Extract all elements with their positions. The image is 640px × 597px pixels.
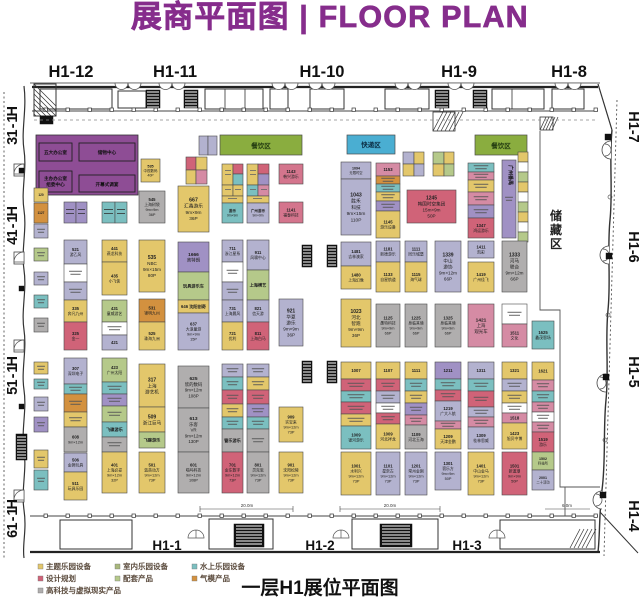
svg-text:1: 1 bbox=[5, 115, 21, 123]
svg-text:73P: 73P bbox=[288, 431, 295, 435]
svg-text:9m×12m: 9m×12m bbox=[68, 440, 83, 444]
svg-text:1001: 1001 bbox=[351, 463, 361, 468]
svg-text:66P: 66P bbox=[510, 276, 518, 281]
svg-text:50P: 50P bbox=[445, 477, 452, 481]
svg-text:20.0m: 20.0m bbox=[241, 503, 254, 508]
svg-text:信天游: 信天游 bbox=[252, 311, 264, 316]
svg-text:中视数码: 中视数码 bbox=[144, 168, 158, 173]
svg-text:玩具游乐车: 玩具游乐车 bbox=[183, 282, 205, 289]
svg-text:联合: 联合 bbox=[510, 263, 520, 270]
svg-text:421: 421 bbox=[111, 340, 119, 345]
svg-text:909: 909 bbox=[288, 414, 296, 419]
svg-text:36P: 36P bbox=[149, 213, 156, 217]
svg-text:沈阳松陵: 沈阳松陵 bbox=[283, 467, 299, 472]
svg-text:711: 711 bbox=[229, 246, 236, 251]
svg-text:愚特科技: 愚特科技 bbox=[380, 320, 396, 325]
svg-text:寰乐方: 寰乐方 bbox=[442, 466, 454, 471]
svg-text:H1-9: H1-9 bbox=[441, 63, 477, 81]
svg-text:锦明九州: 锦明九州 bbox=[144, 310, 160, 315]
svg-text:73P: 73P bbox=[149, 479, 156, 483]
svg-text:1111: 1111 bbox=[412, 368, 421, 373]
svg-text:浙江巨马: 浙江巨马 bbox=[143, 419, 162, 426]
svg-text:华夏: 华夏 bbox=[286, 313, 296, 320]
svg-text:545: 545 bbox=[149, 197, 157, 202]
svg-text:上海: 上海 bbox=[147, 382, 157, 389]
svg-text:9m×12m: 9m×12m bbox=[408, 474, 423, 478]
svg-text:1: 1 bbox=[5, 365, 21, 373]
svg-text:河马: 河马 bbox=[510, 257, 520, 264]
svg-text:藏: 藏 bbox=[550, 222, 562, 237]
svg-text:游乐: 游乐 bbox=[539, 442, 547, 447]
svg-text:9m×12m: 9m×12m bbox=[473, 474, 488, 478]
svg-text:9m×15m: 9m×15m bbox=[347, 211, 366, 217]
svg-text:911: 911 bbox=[255, 250, 262, 255]
svg-text:9m×9m: 9m×9m bbox=[442, 326, 455, 330]
svg-text:海气球: 海气球 bbox=[410, 277, 422, 282]
svg-text:河北玉海: 河北玉海 bbox=[408, 437, 424, 442]
svg-text:鑫茂恩场: 鑫茂恩场 bbox=[535, 335, 551, 340]
svg-text:80P: 80P bbox=[148, 273, 156, 278]
svg-text:73P: 73P bbox=[255, 479, 262, 483]
svg-text:优利: 优利 bbox=[229, 336, 237, 341]
svg-text:1201: 1201 bbox=[411, 463, 421, 468]
svg-text:凯彩: 凯彩 bbox=[477, 249, 485, 254]
svg-text:-: - bbox=[5, 123, 21, 128]
svg-text:实宝来: 实宝来 bbox=[285, 419, 297, 424]
svg-text:餐饮区: 餐饮区 bbox=[490, 141, 511, 150]
svg-text:9m×9m: 9m×9m bbox=[185, 210, 201, 216]
svg-text:上海必妥: 上海必妥 bbox=[107, 467, 123, 472]
svg-text:6.0m: 6.0m bbox=[562, 503, 572, 508]
svg-text:1145: 1145 bbox=[383, 219, 393, 224]
svg-text:40P: 40P bbox=[147, 173, 154, 177]
svg-text:小飞侠: 小飞侠 bbox=[109, 278, 121, 283]
svg-text:435: 435 bbox=[111, 273, 119, 278]
svg-text:646 沈阳创奇: 646 沈阳创奇 bbox=[181, 303, 207, 310]
svg-text:637: 637 bbox=[190, 321, 198, 326]
svg-text:无限时空: 无限时空 bbox=[349, 170, 363, 175]
svg-text:天津金鹏: 天津金鹏 bbox=[440, 439, 456, 444]
svg-text:胜禾: 胜禾 bbox=[351, 198, 361, 205]
svg-text:1043: 1043 bbox=[350, 192, 362, 198]
svg-text:9m×9m: 9m×9m bbox=[283, 326, 299, 331]
svg-text:108P: 108P bbox=[189, 479, 198, 483]
svg-text:50P: 50P bbox=[511, 480, 518, 484]
svg-text:9m×12m: 9m×12m bbox=[505, 270, 523, 275]
svg-text:蓝英动方: 蓝英动方 bbox=[144, 467, 160, 472]
svg-text:吉林澳家: 吉林澳家 bbox=[348, 254, 364, 259]
svg-text:高科技与虚拟现实产品: 高科技与虚拟现实产品 bbox=[46, 585, 121, 595]
svg-text:游协: 游协 bbox=[443, 263, 453, 270]
svg-text:飞碟游乐: 飞碟游乐 bbox=[106, 426, 124, 433]
svg-text:901: 901 bbox=[288, 462, 296, 467]
svg-text:9m×12m: 9m×12m bbox=[186, 473, 201, 477]
svg-text:50P: 50P bbox=[427, 213, 435, 218]
svg-text:73P: 73P bbox=[413, 480, 420, 484]
svg-text:1109: 1109 bbox=[411, 432, 421, 437]
svg-text:福泰科技: 福泰科技 bbox=[283, 212, 299, 217]
svg-text:20.0m: 20.0m bbox=[384, 503, 397, 508]
svg-text:奔凡九州: 奔凡九州 bbox=[68, 311, 84, 316]
svg-text:9m×12m: 9m×12m bbox=[439, 270, 457, 275]
svg-text:汇鑫游乐: 汇鑫游乐 bbox=[184, 203, 203, 210]
svg-text:9m×12m: 9m×12m bbox=[225, 473, 240, 477]
svg-text:1009: 1009 bbox=[383, 431, 393, 436]
svg-text:水利兴: 水利兴 bbox=[350, 468, 362, 473]
svg-text:游乙风: 游乙风 bbox=[70, 252, 82, 257]
svg-text:15P: 15P bbox=[190, 338, 197, 342]
svg-text:9m×9m: 9m×9m bbox=[348, 327, 364, 332]
svg-text:9m×9m: 9m×9m bbox=[442, 472, 455, 476]
svg-text:9m×9m: 9m×9m bbox=[187, 332, 200, 336]
svg-text:童威游艺: 童威游艺 bbox=[107, 311, 123, 316]
svg-text:9m×12m: 9m×12m bbox=[250, 473, 265, 477]
svg-text:-: - bbox=[5, 516, 21, 521]
svg-text:科技所: 科技所 bbox=[538, 460, 549, 465]
svg-text:1325: 1325 bbox=[443, 315, 453, 320]
svg-text:1301: 1301 bbox=[443, 461, 453, 466]
svg-text:1225: 1225 bbox=[411, 315, 421, 320]
svg-text:二十活动: 二十活动 bbox=[536, 479, 550, 484]
svg-text:1115: 1115 bbox=[412, 272, 422, 277]
svg-text:金东数字: 金东数字 bbox=[225, 467, 241, 472]
svg-text:130P: 130P bbox=[188, 439, 198, 444]
svg-text:一层H1展位平面图: 一层H1展位平面图 bbox=[241, 576, 398, 597]
svg-text:9m×9m: 9m×9m bbox=[146, 208, 159, 212]
svg-text:储物中心: 储物中心 bbox=[98, 149, 117, 156]
svg-text:H1-11: H1-11 bbox=[153, 63, 197, 81]
svg-text:H1-12: H1-12 bbox=[49, 63, 94, 81]
svg-text:441: 441 bbox=[111, 246, 119, 251]
svg-text:1: 1 bbox=[5, 508, 21, 516]
svg-text:银河游乐: 银河游乐 bbox=[348, 437, 364, 442]
svg-text:同乐城堡: 同乐城堡 bbox=[408, 251, 424, 256]
svg-text:73P: 73P bbox=[385, 480, 392, 484]
svg-text:801: 801 bbox=[255, 462, 263, 467]
svg-text:335: 335 bbox=[72, 306, 80, 311]
svg-text:431: 431 bbox=[111, 306, 119, 311]
svg-text:423: 423 bbox=[111, 365, 119, 370]
svg-text:广州佳飞: 广州佳飞 bbox=[473, 277, 489, 282]
svg-text:6: 6 bbox=[5, 530, 21, 538]
svg-text:上海模艺: 上海模艺 bbox=[250, 281, 267, 288]
svg-text:1209: 1209 bbox=[443, 434, 453, 439]
svg-text:飞碟游乐: 飞碟游乐 bbox=[144, 436, 162, 443]
svg-text:36P: 36P bbox=[352, 333, 360, 338]
svg-text:上海白马: 上海白马 bbox=[250, 336, 266, 341]
svg-text:游艺机: 游艺机 bbox=[145, 388, 159, 395]
svg-text:1133: 1133 bbox=[383, 272, 393, 277]
svg-text:9m×12m: 9m×12m bbox=[185, 433, 203, 438]
svg-text:608: 608 bbox=[72, 434, 80, 439]
svg-text:广州游乐: 广州游乐 bbox=[251, 208, 266, 213]
svg-text:快递区: 快递区 bbox=[361, 140, 381, 149]
svg-text:1: 1 bbox=[5, 215, 21, 223]
svg-text:9m×12m: 9m×12m bbox=[380, 474, 395, 478]
svg-text:新道潮: 新道潮 bbox=[509, 468, 521, 473]
svg-text:1007: 1007 bbox=[351, 368, 361, 373]
svg-text:H1-5: H1-5 bbox=[625, 356, 640, 387]
svg-text:1153: 1153 bbox=[383, 167, 393, 172]
svg-text:1321: 1321 bbox=[510, 368, 520, 373]
svg-text:广州番禺: 广州番禺 bbox=[507, 165, 514, 185]
svg-text:721: 721 bbox=[229, 331, 237, 336]
svg-text:1411: 1411 bbox=[476, 244, 486, 249]
svg-text:主题乐园设备: 主题乐园设备 bbox=[46, 561, 91, 571]
svg-text:H1-10: H1-10 bbox=[300, 63, 345, 81]
svg-text:73P: 73P bbox=[353, 480, 360, 484]
svg-text:五大办公室: 五大办公室 bbox=[44, 149, 67, 156]
svg-text:韩兴游乐: 韩兴游乐 bbox=[283, 174, 299, 179]
svg-text:1: 1 bbox=[5, 522, 21, 530]
svg-text:701: 701 bbox=[229, 462, 237, 467]
svg-text:风啸中心: 风啸中心 bbox=[250, 255, 266, 260]
svg-text:1211: 1211 bbox=[443, 368, 453, 373]
svg-text:66P: 66P bbox=[444, 276, 452, 281]
svg-text:1: 1 bbox=[5, 129, 21, 137]
svg-text:中山: 中山 bbox=[443, 257, 453, 264]
svg-text:深圳电子: 深圳电子 bbox=[68, 371, 84, 376]
svg-text:9m×12m: 9m×12m bbox=[107, 473, 122, 477]
svg-text:智跑: 智跑 bbox=[351, 320, 361, 327]
svg-text:主办办公室: 主办办公室 bbox=[44, 175, 67, 182]
svg-text:1: 1 bbox=[5, 379, 21, 387]
svg-text:1101: 1101 bbox=[383, 463, 393, 468]
svg-text:9m×12m: 9m×12m bbox=[283, 425, 298, 429]
svg-text:浙江星系: 浙江星系 bbox=[225, 251, 241, 256]
svg-text:1311: 1311 bbox=[476, 368, 486, 373]
svg-text:1518: 1518 bbox=[510, 415, 520, 420]
svg-text:上海幻像: 上海幻像 bbox=[348, 277, 364, 282]
svg-text:上海树袋: 上海树袋 bbox=[144, 202, 160, 207]
svg-text:307: 307 bbox=[72, 366, 80, 371]
svg-text:桂林思威: 桂林思威 bbox=[473, 438, 489, 443]
svg-text:535: 535 bbox=[147, 164, 153, 168]
svg-text:金狮玩具: 金狮玩具 bbox=[68, 462, 84, 467]
svg-text:73P: 73P bbox=[478, 480, 485, 484]
svg-text:H1-2: H1-2 bbox=[305, 538, 334, 553]
svg-text:储: 储 bbox=[550, 208, 562, 223]
svg-text:H1-4: H1-4 bbox=[625, 500, 640, 531]
svg-text:1125: 1125 bbox=[383, 315, 393, 320]
svg-text:601: 601 bbox=[190, 462, 198, 467]
svg-text:VR: VR bbox=[190, 428, 196, 433]
svg-text:1219: 1219 bbox=[443, 406, 453, 411]
svg-text:1511: 1511 bbox=[510, 330, 520, 335]
svg-text:上海晨风: 上海晨风 bbox=[225, 311, 241, 316]
svg-text:燕龙科技: 燕龙科技 bbox=[107, 251, 123, 256]
svg-text:喵吗科技: 喵吗科技 bbox=[186, 467, 202, 472]
svg-text:H1-7: H1-7 bbox=[625, 111, 640, 142]
svg-text:玩具乐园: 玩具乐园 bbox=[68, 486, 84, 491]
svg-text:506: 506 bbox=[72, 457, 80, 462]
svg-text:1: 1 bbox=[5, 229, 21, 237]
svg-text:新德游乐: 新德游乐 bbox=[380, 251, 396, 256]
svg-text:广大人航: 广大人航 bbox=[440, 411, 456, 416]
svg-text:1625: 1625 bbox=[538, 330, 548, 335]
svg-text:1009: 1009 bbox=[351, 432, 361, 437]
svg-text:自星航道: 自星航道 bbox=[380, 277, 396, 282]
svg-text:1621: 1621 bbox=[538, 368, 548, 373]
svg-text:9m×9m: 9m×9m bbox=[382, 326, 395, 330]
svg-text:120: 120 bbox=[38, 193, 44, 197]
svg-text:灵克思: 灵克思 bbox=[252, 467, 264, 472]
svg-text:525: 525 bbox=[149, 331, 157, 336]
svg-text:110P: 110P bbox=[351, 217, 362, 223]
svg-text:-: - bbox=[5, 373, 21, 378]
svg-text:餐饮区: 餐饮区 bbox=[250, 141, 271, 150]
svg-text:常州金刚: 常州金刚 bbox=[408, 468, 424, 473]
svg-text:NBC: NBC bbox=[147, 261, 157, 266]
svg-text:河北祥龙: 河北祥龙 bbox=[380, 436, 396, 441]
svg-text:鸿运游乐: 鸿运游乐 bbox=[473, 228, 489, 233]
svg-text:811: 811 bbox=[255, 331, 262, 336]
svg-text:731: 731 bbox=[229, 306, 237, 311]
svg-text:511: 511 bbox=[72, 481, 79, 486]
svg-text:大浪童游: 大浪童游 bbox=[186, 326, 202, 331]
svg-text:821: 821 bbox=[255, 306, 263, 311]
svg-text:中山金马: 中山金马 bbox=[473, 468, 489, 473]
svg-text:身临其境: 身临其境 bbox=[408, 320, 424, 325]
svg-text:9m×12m: 9m×12m bbox=[283, 473, 298, 477]
svg-text:1480: 1480 bbox=[351, 272, 361, 277]
svg-text:531: 531 bbox=[149, 305, 157, 310]
svg-text:配套产品: 配套产品 bbox=[123, 573, 153, 583]
svg-text:9m×12m: 9m×12m bbox=[144, 473, 159, 477]
svg-text:1107: 1107 bbox=[383, 368, 393, 373]
svg-text:66P: 66P bbox=[385, 332, 392, 336]
svg-text:4: 4 bbox=[5, 237, 21, 245]
svg-text:H1-6: H1-6 bbox=[625, 231, 640, 262]
svg-text:观光车: 观光车 bbox=[474, 328, 488, 335]
svg-text:星奈古: 星奈古 bbox=[382, 468, 394, 473]
svg-text:667: 667 bbox=[189, 197, 198, 203]
svg-text:9m×12m: 9m×12m bbox=[185, 388, 203, 393]
svg-text:水上乐园设备: 水上乐园设备 bbox=[200, 561, 245, 571]
svg-text:1423: 1423 bbox=[510, 431, 520, 436]
svg-text:区: 区 bbox=[550, 237, 562, 251]
svg-text:身临其境: 身临其境 bbox=[440, 320, 456, 325]
svg-text:9m×9m: 9m×9m bbox=[410, 326, 423, 330]
svg-text:开幕式调宴: 开幕式调宴 bbox=[96, 181, 119, 188]
svg-text:9m×15m: 9m×15m bbox=[143, 267, 161, 272]
svg-text:521: 521 bbox=[72, 247, 80, 252]
svg-text:游乐: 游乐 bbox=[286, 319, 296, 326]
svg-text:1481: 1481 bbox=[351, 249, 361, 254]
svg-text:32P: 32P bbox=[111, 479, 118, 483]
svg-text:韩国时空集团: 韩国时空集团 bbox=[418, 200, 446, 207]
svg-text:1111: 1111 bbox=[412, 246, 421, 251]
svg-text:5: 5 bbox=[5, 387, 21, 395]
svg-text:9m×9m: 9m×9m bbox=[227, 213, 238, 217]
svg-text:H1-1: H1-1 bbox=[152, 538, 182, 553]
svg-text:1309: 1309 bbox=[476, 433, 486, 438]
svg-text:文化: 文化 bbox=[511, 335, 519, 340]
svg-text:游乐设备: 游乐设备 bbox=[380, 224, 396, 229]
svg-text:66P: 66P bbox=[413, 332, 420, 336]
svg-text:3: 3 bbox=[5, 137, 21, 145]
svg-text:H1-8: H1-8 bbox=[551, 63, 587, 81]
svg-text:旭贝中博: 旭贝中博 bbox=[507, 436, 523, 441]
svg-text:401: 401 bbox=[111, 462, 119, 467]
svg-text:36P: 36P bbox=[287, 332, 295, 337]
svg-text:广州太阳: 广州太阳 bbox=[107, 370, 123, 375]
svg-text:组委中心: 组委中心 bbox=[46, 181, 65, 188]
svg-text:1143: 1143 bbox=[286, 169, 296, 174]
svg-text:室内乐园设备: 室内乐园设备 bbox=[123, 561, 168, 571]
svg-text:1181: 1181 bbox=[383, 246, 393, 251]
svg-text:1519: 1519 bbox=[538, 437, 548, 442]
svg-text:珠海九洲: 珠海九洲 bbox=[144, 336, 160, 341]
svg-text:1501: 1501 bbox=[510, 463, 520, 468]
svg-text:1401: 1401 bbox=[476, 463, 486, 468]
svg-text:管乐游乐: 管乐游乐 bbox=[224, 437, 242, 444]
svg-text:气模产品: 气模产品 bbox=[199, 573, 230, 583]
svg-text:H1-3: H1-3 bbox=[452, 538, 482, 553]
svg-text:1127: 1127 bbox=[38, 211, 45, 215]
svg-text:游乐: 游乐 bbox=[229, 208, 237, 213]
svg-text:科技: 科技 bbox=[351, 204, 361, 211]
svg-text:108P: 108P bbox=[188, 393, 198, 398]
svg-text:展商平面图 | FLOOR PLAN: 展商平面图 | FLOOR PLAN bbox=[131, 0, 529, 34]
svg-text:河北: 河北 bbox=[351, 314, 361, 321]
svg-text:15m×9m: 15m×9m bbox=[422, 207, 440, 212]
svg-text:325: 325 bbox=[72, 331, 80, 336]
svg-text:73P: 73P bbox=[229, 479, 236, 483]
svg-text:73P: 73P bbox=[288, 479, 295, 483]
svg-text:设计规划: 设计规划 bbox=[46, 573, 76, 583]
svg-text:1141: 1141 bbox=[286, 207, 296, 212]
svg-text:66P: 66P bbox=[445, 332, 452, 336]
svg-text:1419: 1419 bbox=[476, 272, 486, 277]
svg-text:9m×12m: 9m×12m bbox=[348, 474, 363, 478]
svg-text:奥特朗: 奥特朗 bbox=[187, 257, 201, 264]
svg-text:9m×9m: 9m×9m bbox=[252, 213, 263, 217]
svg-text:1347: 1347 bbox=[476, 223, 486, 228]
svg-text:501: 501 bbox=[149, 462, 157, 467]
svg-text:-: - bbox=[5, 223, 21, 228]
svg-text:36P: 36P bbox=[189, 216, 197, 222]
svg-text:金一: 金一 bbox=[72, 336, 80, 341]
svg-text:9m×9m: 9m×9m bbox=[508, 474, 521, 478]
